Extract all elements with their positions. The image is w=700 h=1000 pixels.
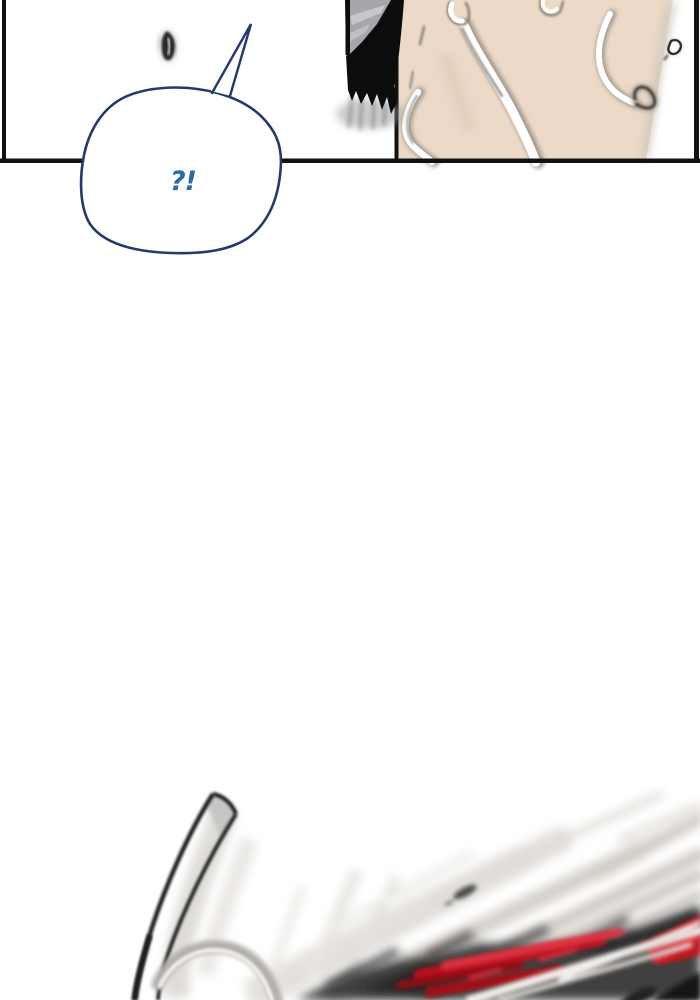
- speech-bubble: ?!: [81, 24, 281, 253]
- panel-border-left: [2, 0, 6, 163]
- skin-closeup-panel: [398, 0, 676, 160]
- sweat-bead: [664, 40, 681, 60]
- webtoon-page: ?!: [0, 0, 700, 1000]
- blade-curve: [134, 794, 250, 1000]
- action-scene-art: [0, 780, 700, 1000]
- debris-speck: [158, 31, 176, 60]
- speech-bubble-text: ?!: [170, 166, 196, 197]
- top-panel-art: ?!: [0, 0, 700, 300]
- panel-border-right: [694, 0, 699, 163]
